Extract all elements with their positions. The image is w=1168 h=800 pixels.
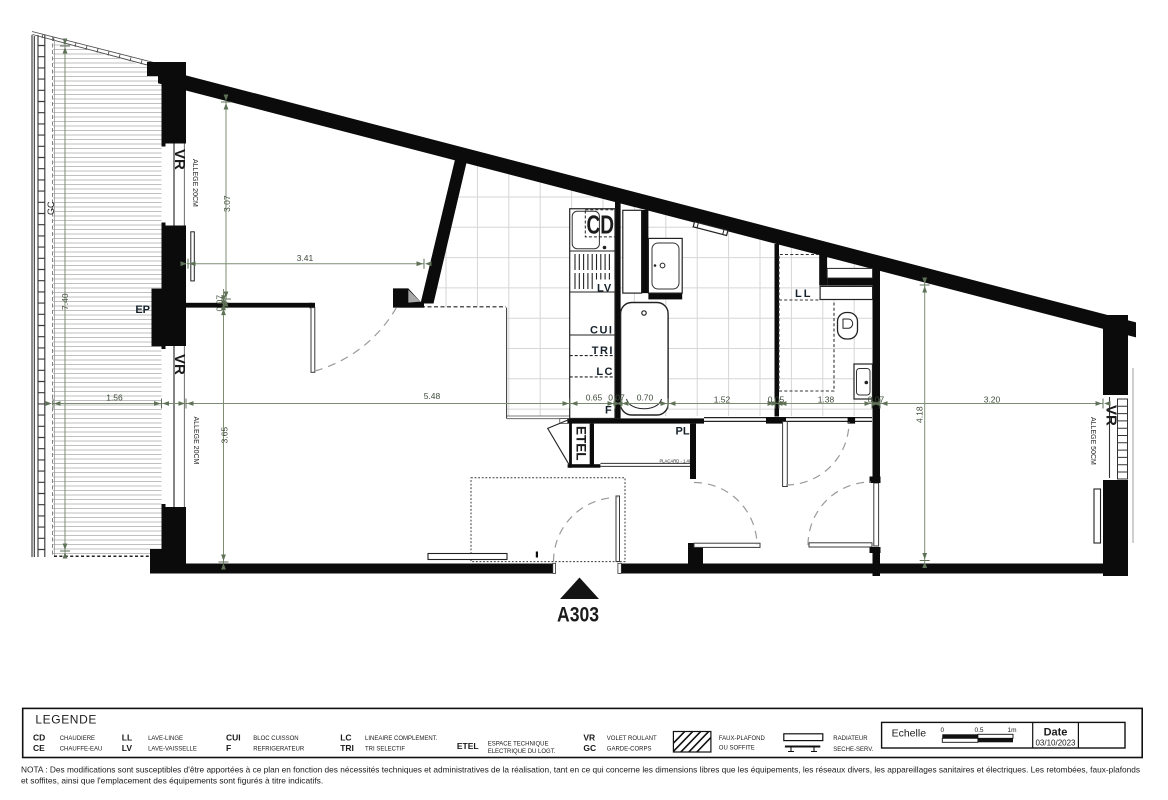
svg-text:VR: VR [583, 733, 595, 743]
svg-text:0.07: 0.07 [608, 393, 625, 403]
svg-text:NOTA : Des modifications sont: NOTA : Des modifications sont susceptibl… [21, 765, 1140, 775]
svg-text:7.40: 7.40 [60, 293, 70, 310]
svg-text:03/10/2023: 03/10/2023 [1035, 739, 1076, 748]
svg-text:F: F [605, 405, 612, 417]
svg-text:VR: VR [1103, 405, 1120, 426]
svg-text:CHAUFFE-EAU: CHAUFFE-EAU [60, 746, 103, 752]
svg-text:TRI: TRI [592, 345, 614, 357]
svg-text:0.5: 0.5 [974, 727, 983, 734]
svg-text:CE: CE [33, 743, 45, 753]
svg-text:LC: LC [340, 733, 351, 743]
svg-text:LV: LV [122, 743, 133, 753]
svg-text:ALLEGE 20CM: ALLEGE 20CM [192, 417, 199, 465]
svg-text:FAUX-PLAFOND: FAUX-PLAFOND [719, 736, 766, 742]
svg-text:EP: EP [135, 304, 150, 316]
svg-text:LAVE-LINGE: LAVE-LINGE [148, 736, 183, 742]
svg-text:BLOC CUISSON: BLOC CUISSON [253, 736, 298, 742]
svg-text:0.07: 0.07 [215, 295, 225, 312]
svg-text:GARDE-CORPS: GARDE-CORPS [607, 746, 652, 752]
svg-text:LC: LC [596, 366, 614, 378]
svg-text:GC: GC [46, 201, 56, 215]
svg-text:1.52: 1.52 [714, 395, 731, 405]
svg-text:3.65: 3.65 [220, 427, 230, 444]
svg-text:0.05: 0.05 [768, 395, 785, 405]
svg-text:et soffites, ainsi que l'empla: et soffites, ainsi que l'emplacement des… [21, 776, 323, 786]
svg-text:CD: CD [33, 733, 45, 743]
svg-text:SECHE-SERV.: SECHE-SERV. [833, 747, 873, 753]
svg-text:0: 0 [940, 727, 944, 734]
svg-text:VR: VR [171, 149, 188, 170]
svg-text:CD: CD [587, 210, 615, 240]
svg-text:ALLEGE 20CM: ALLEGE 20CM [191, 159, 198, 207]
svg-text:VOLET ROULANT: VOLET ROULANT [607, 736, 657, 742]
svg-text:VR: VR [171, 354, 188, 375]
svg-text:ETEL: ETEL [574, 426, 589, 461]
svg-text:TRI: TRI [340, 743, 354, 753]
svg-text:A303: A303 [557, 604, 599, 627]
svg-text:0.07: 0.07 [868, 395, 885, 405]
svg-text:ALLEGE 50CM: ALLEGE 50CM [1089, 417, 1096, 465]
svg-text:0.70: 0.70 [637, 393, 654, 403]
svg-text:1.38: 1.38 [818, 395, 835, 405]
svg-text:GC: GC [583, 743, 596, 753]
svg-text:ELECTRIQUE DU LOGT.: ELECTRIQUE DU LOGT. [488, 749, 556, 755]
svg-text:LINEAIRE COMPLEMENT.: LINEAIRE COMPLEMENT. [365, 736, 438, 742]
svg-text:LEGENDE: LEGENDE [35, 713, 97, 727]
svg-text:Echelle: Echelle [892, 728, 927, 740]
svg-text:Date: Date [1044, 727, 1068, 739]
svg-text:RADIATEUR: RADIATEUR [833, 736, 868, 742]
svg-text:LL: LL [122, 733, 132, 743]
svg-text:PL: PL [676, 426, 690, 438]
svg-text:ETEL: ETEL [457, 741, 479, 751]
svg-text:5.48: 5.48 [424, 391, 441, 401]
svg-text:CHAUDIERE: CHAUDIERE [60, 736, 95, 742]
svg-text:1m: 1m [1007, 727, 1016, 734]
svg-text:1.56: 1.56 [106, 393, 123, 403]
svg-text:F: F [226, 743, 231, 753]
svg-text:LAVE-VAISSELLE: LAVE-VAISSELLE [148, 746, 197, 752]
svg-text:CUI: CUI [590, 325, 613, 337]
svg-text:3.07: 3.07 [222, 195, 232, 212]
svg-text:ESPACE TECHNIQUE: ESPACE TECHNIQUE [488, 742, 549, 748]
svg-text:REFRIGERATEUR: REFRIGERATEUR [253, 746, 305, 752]
svg-text:3.20: 3.20 [984, 395, 1001, 405]
svg-text:OU SOFFITE: OU SOFFITE [719, 745, 755, 751]
svg-text:3.41: 3.41 [297, 253, 314, 263]
svg-text:4.18: 4.18 [915, 406, 925, 423]
svg-text:LL: LL [795, 288, 812, 300]
svg-text:LV: LV [597, 283, 612, 295]
svg-text:CUI: CUI [226, 733, 241, 743]
svg-text:0.65: 0.65 [586, 393, 603, 403]
svg-text:TRI SELECTIF: TRI SELECTIF [365, 746, 405, 752]
